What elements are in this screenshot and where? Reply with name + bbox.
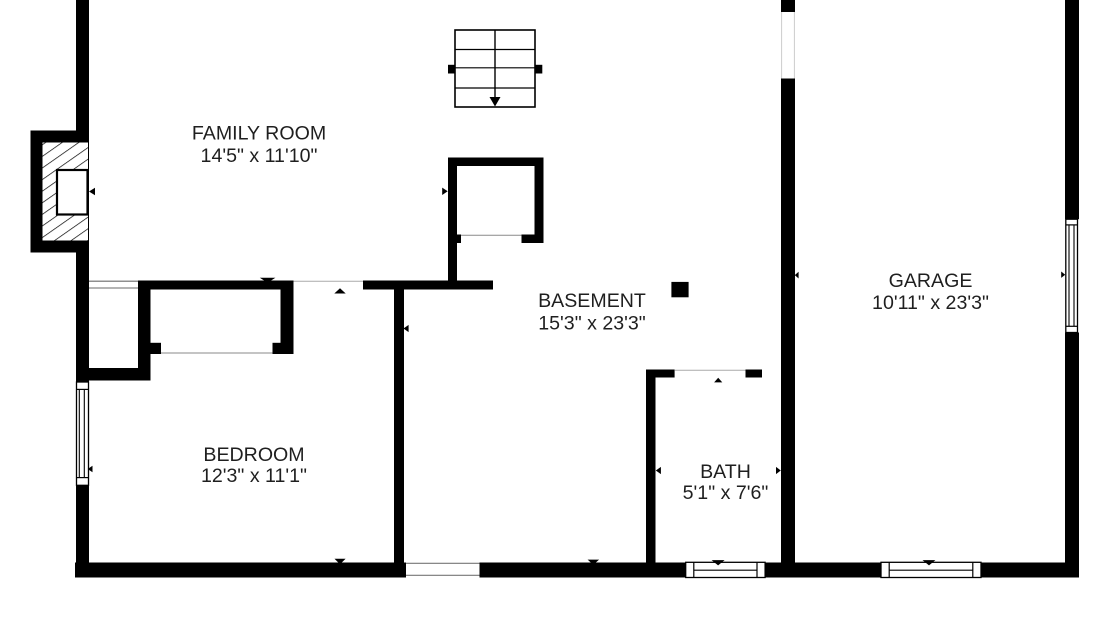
svg-text:BEDROOM: BEDROOM	[203, 444, 304, 466]
svg-text:5'1" x 7'6": 5'1" x 7'6"	[683, 482, 769, 504]
svg-text:GARAGE: GARAGE	[889, 270, 973, 292]
svg-text:BATH: BATH	[700, 461, 751, 483]
svg-text:BASEMENT: BASEMENT	[538, 290, 646, 312]
svg-text:10'11" x 23'3": 10'11" x 23'3"	[872, 292, 989, 314]
svg-text:15'3" x 23'3": 15'3" x 23'3"	[538, 312, 646, 334]
svg-text:FAMILY ROOM: FAMILY ROOM	[192, 122, 326, 144]
svg-text:12'3" x 11'1": 12'3" x 11'1"	[201, 465, 307, 487]
svg-text:14'5" x 11'10": 14'5" x 11'10"	[201, 145, 318, 167]
